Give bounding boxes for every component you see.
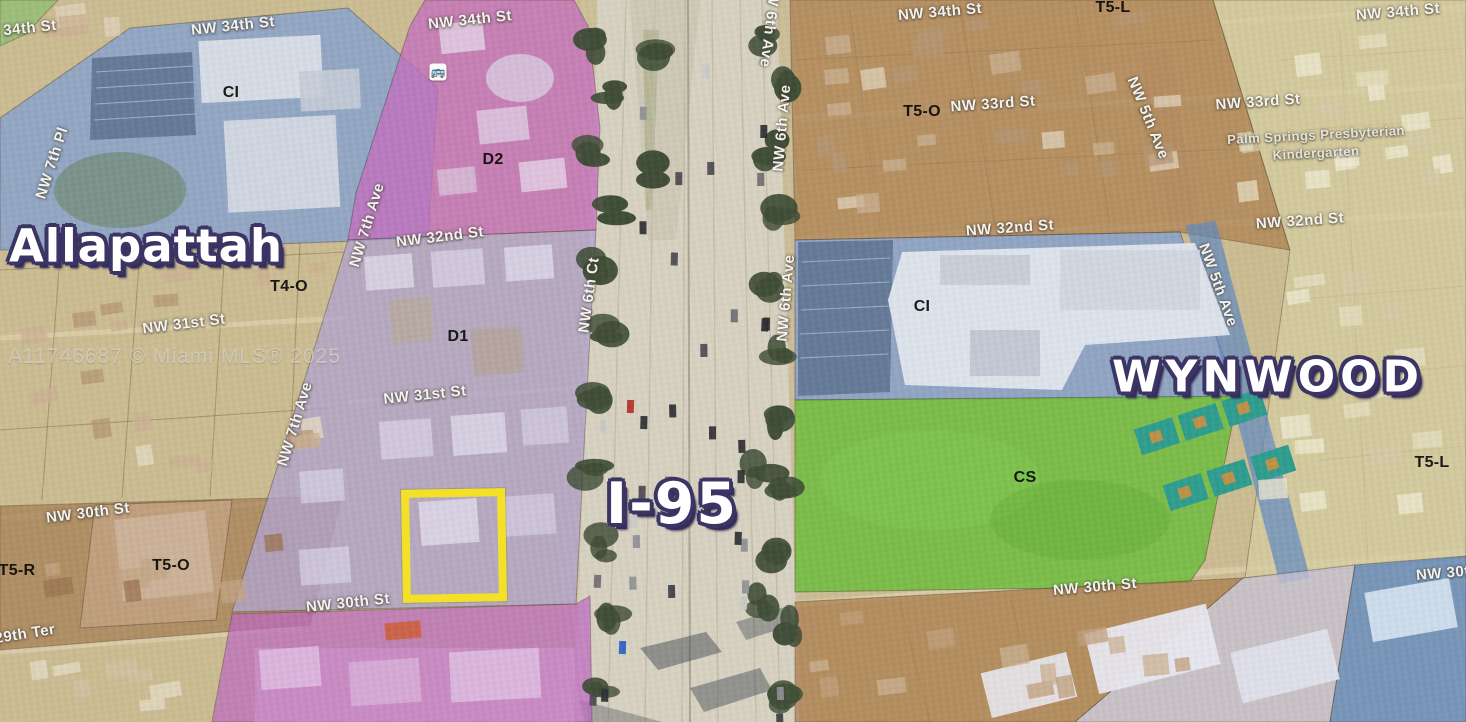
- map-canvas[interactable]: A11746687 © Miami MLS® 2025 🚌 34th StNW …: [0, 0, 1466, 722]
- mls-watermark: A11746687 © Miami MLS® 2025: [8, 345, 341, 369]
- subject-property-highlight[interactable]: [401, 488, 507, 603]
- bus-stop-icon: 🚌: [430, 64, 447, 81]
